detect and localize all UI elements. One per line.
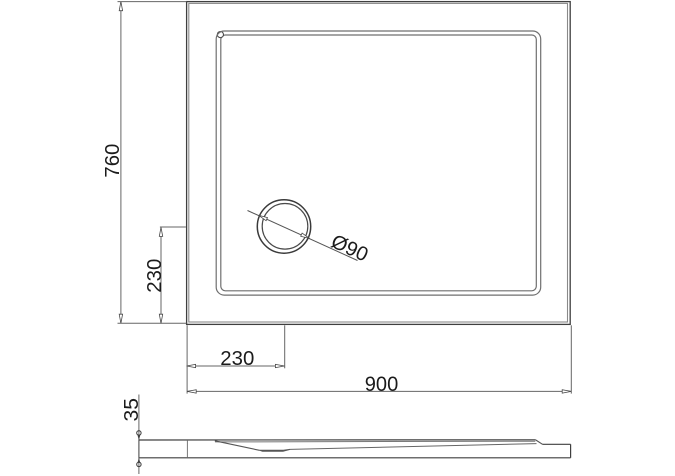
svg-text:760: 760 xyxy=(101,144,124,178)
svg-text:900: 900 xyxy=(365,373,399,396)
svg-text:35: 35 xyxy=(120,398,143,422)
svg-text:230: 230 xyxy=(143,259,166,293)
svg-text:230: 230 xyxy=(220,347,254,370)
